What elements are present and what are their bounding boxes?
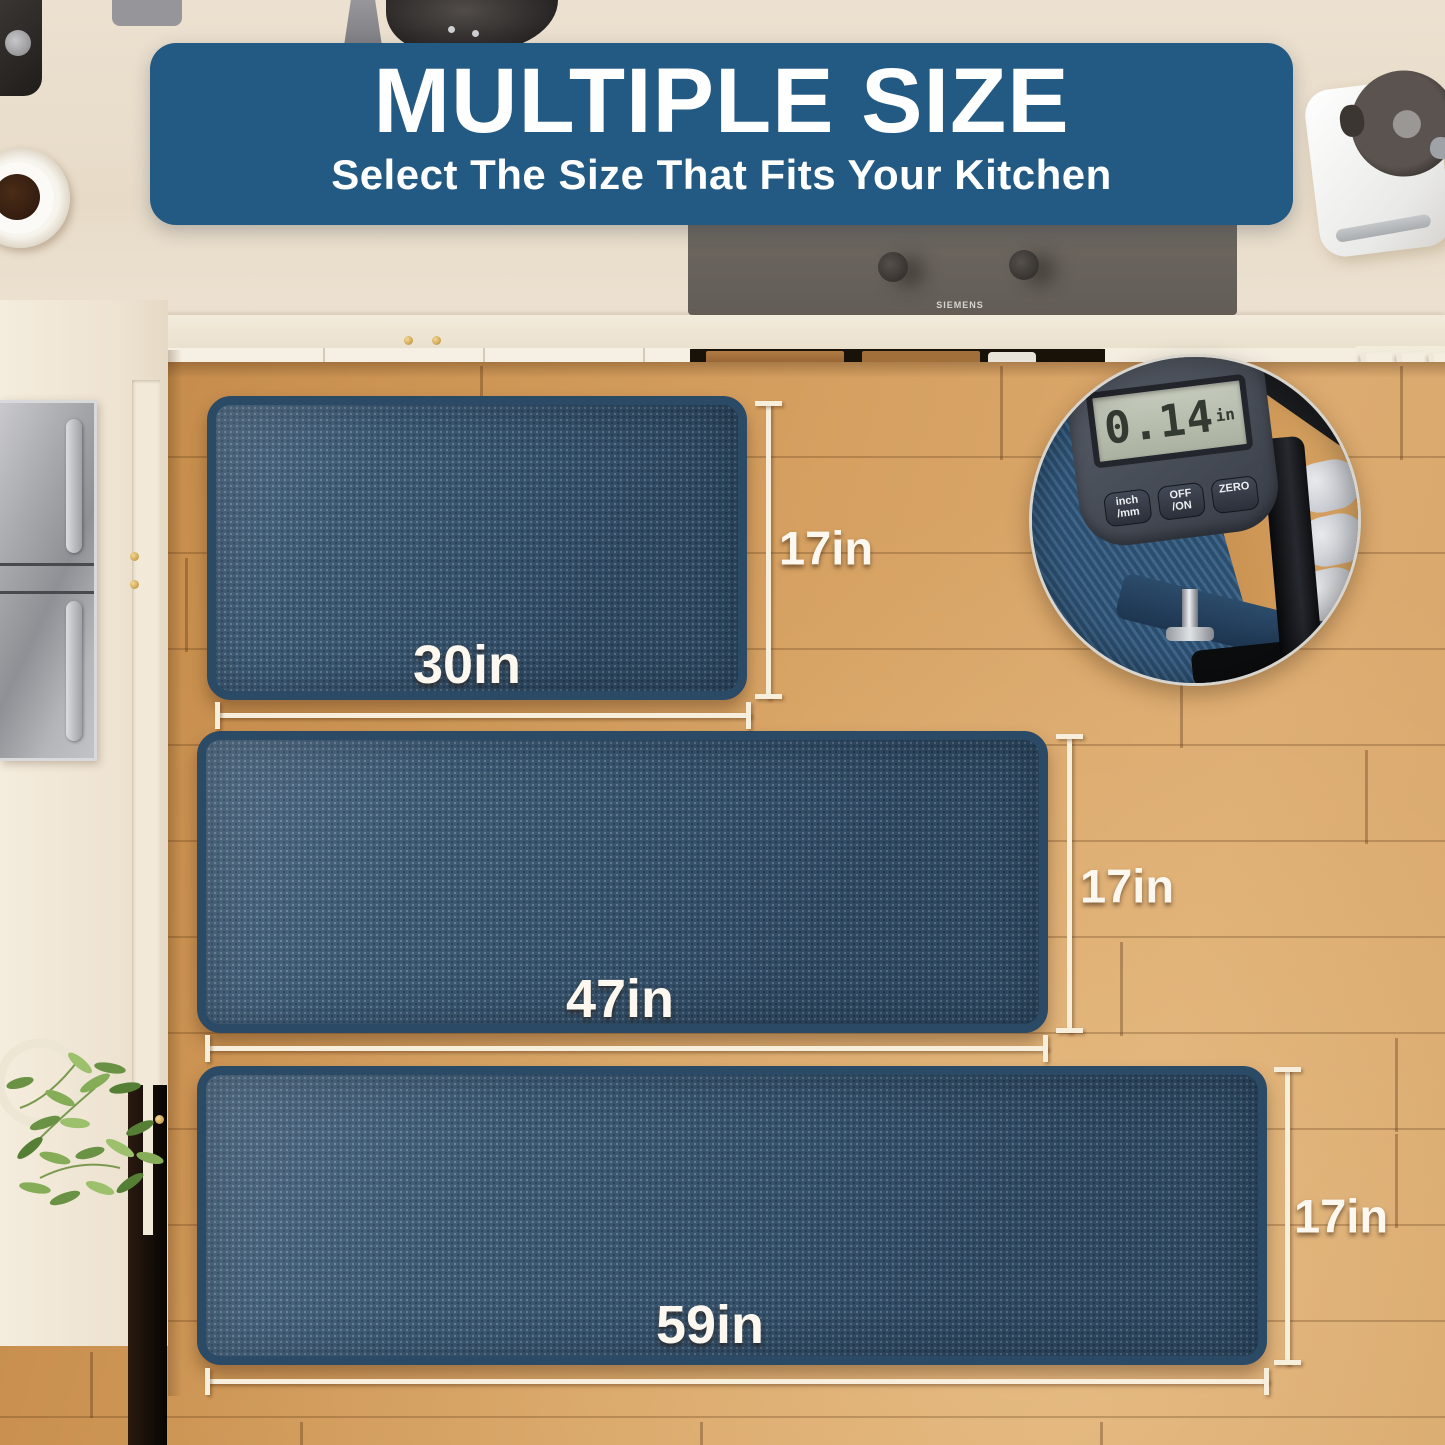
floor-plank-joint: [1000, 366, 1003, 460]
floor-plank-joint: [700, 1422, 703, 1445]
mat-large-width-label: 59in: [656, 1294, 764, 1356]
floor-plank-joint: [1395, 1038, 1398, 1132]
floor-plank-joint: [1400, 366, 1403, 460]
iron-detail: [448, 26, 455, 33]
mat-small-height-label: 17in: [779, 521, 873, 576]
oven-divider: [0, 563, 94, 566]
oven-divider: [0, 591, 94, 594]
mat-medium-height-label: 17in: [1080, 859, 1174, 914]
iron-detail: [472, 30, 479, 37]
floor-plank-joint: [1120, 942, 1123, 1036]
dimension-line-medium-width: [205, 1046, 1048, 1051]
stainless-oven: [0, 400, 97, 761]
thickness-gauge-inset: 0.14in inch /mm OFF /ON ZERO: [1029, 354, 1361, 686]
oven-handle: [66, 419, 82, 553]
floor-plank-joint: [90, 1352, 93, 1418]
gauge-button-inch-mm: inch /mm: [1103, 488, 1153, 527]
hood-brand-label: SIEMENS: [919, 300, 1001, 310]
espresso-machine-dial: [5, 30, 31, 56]
potted-plant: [0, 1028, 205, 1233]
counter-edge: [0, 315, 1445, 352]
hood-knob: [878, 252, 908, 282]
gauge-button-off-on: OFF /ON: [1157, 482, 1207, 521]
dimension-line-large-width: [205, 1379, 1269, 1384]
floor-plank-joint: [185, 558, 188, 652]
gauge-body: 0.14in inch /mm OFF /ON ZERO: [1061, 354, 1283, 550]
utensil-holder: [344, 0, 382, 46]
kitchen-scene: SIEMENS: [0, 0, 1445, 1445]
gauge-buttons: inch /mm OFF /ON ZERO: [1092, 474, 1271, 529]
banner-title: MULTIPLE SIZE: [150, 43, 1293, 149]
dimension-line-medium-height: [1067, 734, 1072, 1033]
banner-subtitle: Select The Size That Fits Your Kitchen: [150, 151, 1293, 199]
hood-knob: [1009, 250, 1039, 280]
title-banner: MULTIPLE SIZE Select The Size That Fits …: [150, 43, 1293, 225]
cabinet-knob: [432, 336, 441, 345]
gauge-button-zero: ZERO: [1210, 475, 1260, 514]
mat-large-height-label: 17in: [1294, 1189, 1388, 1244]
floor-plank-joint: [1365, 750, 1368, 844]
cabinet-knob: [404, 336, 413, 345]
electric-kettle: [1302, 77, 1445, 260]
floor-plank-joint: [1100, 1422, 1103, 1445]
espresso-machine: [0, 0, 42, 96]
gauge-anvil: [1166, 627, 1214, 641]
kitchen-island: [0, 300, 168, 1346]
kettle-vent: [1335, 214, 1432, 243]
mat-medium-width-label: 47in: [566, 968, 674, 1030]
gauge-button-label: /mm: [1112, 506, 1145, 522]
mat-small-width-label: 30in: [413, 634, 521, 696]
gauge-reading: 0.14: [1101, 390, 1216, 454]
cabinet-knob: [130, 552, 139, 561]
cabinet-knob: [130, 580, 139, 589]
dimension-line-small-width: [215, 713, 751, 718]
gauge-button-label: ZERO: [1218, 481, 1251, 497]
oven-handle: [66, 601, 82, 741]
floor-plank-joint: [1395, 1134, 1398, 1228]
floor-plank-joint: [300, 1422, 303, 1445]
dimension-line-small-height: [766, 401, 771, 699]
gauge-reading-unit: in: [1214, 404, 1235, 425]
small-tray: [112, 0, 182, 26]
dimension-line-large-height: [1285, 1067, 1290, 1365]
gauge-lcd-display: 0.14in: [1086, 374, 1254, 469]
